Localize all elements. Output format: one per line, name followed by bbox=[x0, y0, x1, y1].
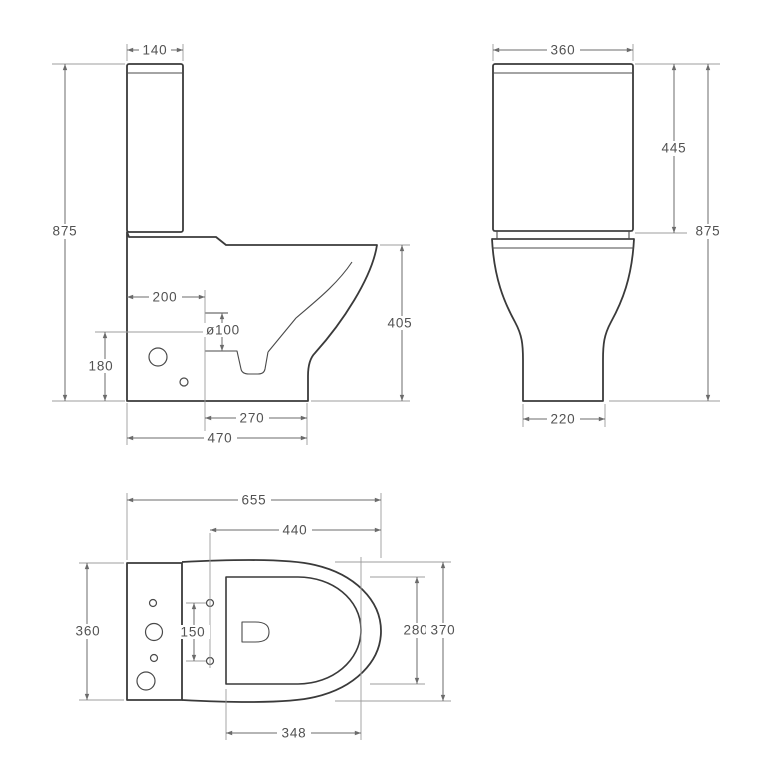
dim-label-plan-bowl-inner-length: 348 bbox=[282, 726, 307, 741]
side-view: 140 875 200 ø100 180 405 bbox=[48, 43, 417, 446]
front-bowl-outline bbox=[492, 239, 634, 401]
dim-side-tank-width: 140 bbox=[127, 43, 183, 58]
drawing-canvas: 140 875 200 ø100 180 405 bbox=[0, 0, 768, 768]
front-view: 360 445 875 220 bbox=[492, 43, 726, 428]
dim-front-foot-width: 220 bbox=[523, 412, 605, 427]
plan-view: 655 440 360 150 280 370 bbox=[71, 493, 460, 741]
dim-side-outlet-to-front: 270 bbox=[205, 411, 307, 426]
dim-label-side-depth: 470 bbox=[208, 431, 233, 446]
dim-label-front-tank-height: 445 bbox=[662, 141, 687, 156]
dim-label-plan-bowl-outer-width: 370 bbox=[431, 623, 456, 638]
side-tank-outline bbox=[127, 64, 183, 232]
dim-label-front-total-height: 875 bbox=[696, 224, 721, 239]
dim-label-side-rim-height: 405 bbox=[388, 316, 413, 331]
dim-label-front-foot-width: 220 bbox=[551, 412, 576, 427]
dim-label-plan-bowl-inner-width: 280 bbox=[404, 623, 429, 638]
front-tank-outline bbox=[493, 64, 633, 231]
dim-side-rim-height: 405 bbox=[384, 245, 417, 401]
dim-front-tank-width: 360 bbox=[493, 43, 633, 58]
dim-label-plan-overall-depth: 655 bbox=[242, 493, 267, 508]
dim-label-side-outlet-diameter: ø100 bbox=[206, 323, 240, 338]
dim-front-total-height: 875 bbox=[691, 64, 726, 401]
dim-front-tank-height: 445 bbox=[657, 64, 691, 233]
plan-bowl-outer-outline bbox=[182, 560, 381, 702]
dim-label-side-outlet-center-height: 180 bbox=[89, 359, 114, 374]
dim-plan-width: 360 bbox=[71, 563, 105, 700]
dim-label-side-outlet-setback: 200 bbox=[153, 290, 178, 305]
toilet-dimension-drawing: 140 875 200 ø100 180 405 bbox=[0, 0, 768, 768]
dim-label-front-tank-width: 360 bbox=[551, 43, 576, 58]
dim-label-side-tank-width: 140 bbox=[143, 43, 168, 58]
dim-side-depth: 470 bbox=[127, 431, 307, 446]
dim-label-side-outlet-to-front: 270 bbox=[240, 411, 265, 426]
dim-plan-overall-depth: 655 bbox=[127, 493, 381, 508]
dim-plan-bowl-outer-width: 370 bbox=[426, 562, 460, 701]
dim-label-plan-hinge-spacing: 150 bbox=[181, 625, 206, 640]
dim-label-plan-width: 360 bbox=[76, 624, 101, 639]
dim-plan-bowl-inner-length: 348 bbox=[226, 726, 361, 741]
dim-side-total-height: 875 bbox=[48, 64, 83, 401]
side-bowl-outline bbox=[127, 232, 377, 401]
dim-label-side-total-height: 875 bbox=[53, 224, 78, 239]
dim-plan-seat-length: 440 bbox=[210, 523, 381, 538]
dim-label-plan-seat-length: 440 bbox=[283, 523, 308, 538]
dim-side-outlet-center-height: 180 bbox=[85, 332, 118, 401]
